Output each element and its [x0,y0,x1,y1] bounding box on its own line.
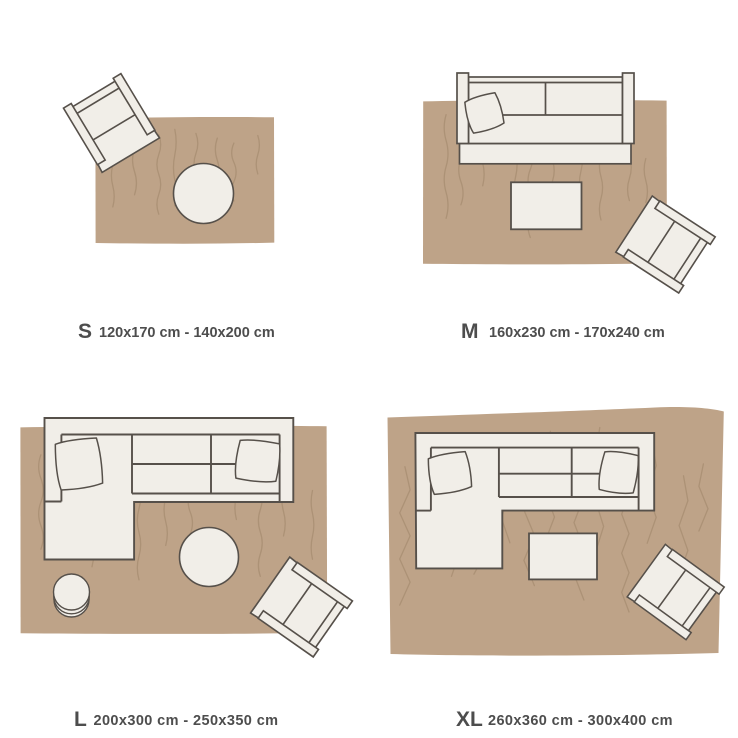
svg-text:XL: XL [456,708,483,731]
svg-text:L: L [74,708,87,731]
svg-text:S: S [78,320,92,343]
svg-text:200x300 cm - 250x350 cm: 200x300 cm - 250x350 cm [94,713,279,729]
svg-text:160x230 cm - 170x240 cm: 160x230 cm - 170x240 cm [489,325,665,341]
svg-text:120x170 cm - 140x200 cm: 120x170 cm - 140x200 cm [99,325,275,341]
svg-text:260x360 cm - 300x400 cm: 260x360 cm - 300x400 cm [488,713,673,729]
svg-text:M: M [461,320,479,343]
